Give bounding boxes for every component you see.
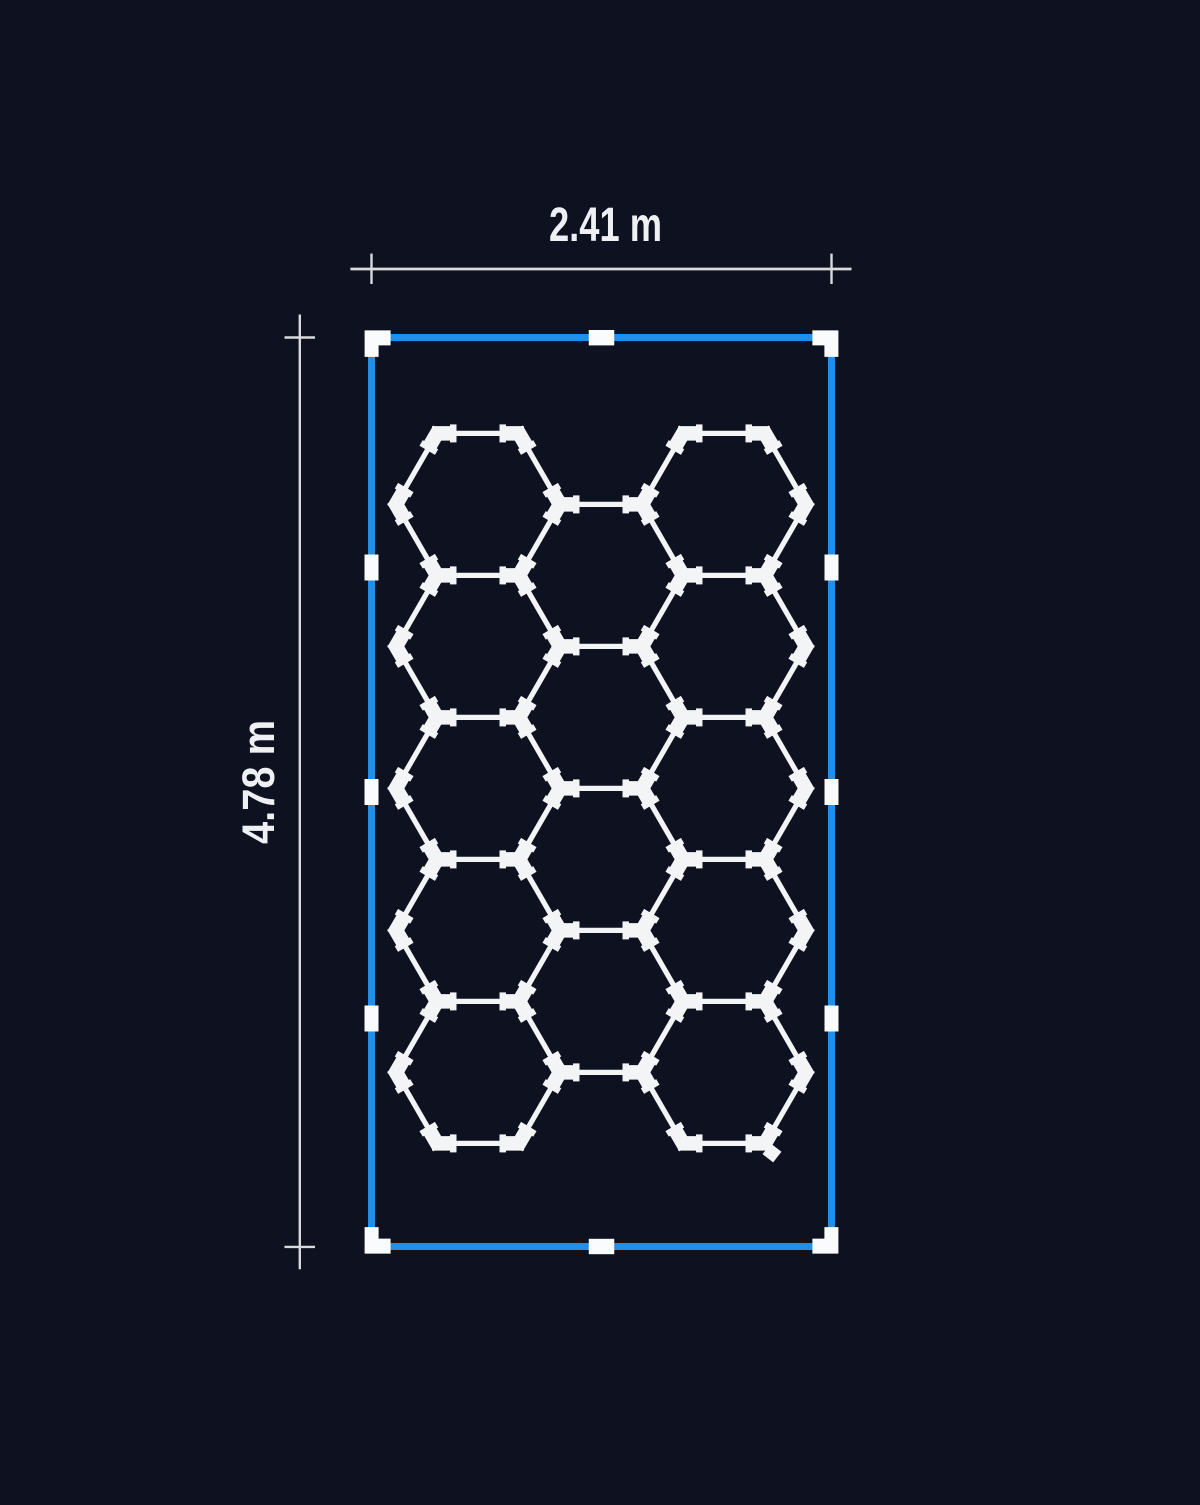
svg-text:4.78 m: 4.78 m [233, 720, 284, 844]
svg-text:2.41 m: 2.41 m [549, 199, 662, 252]
